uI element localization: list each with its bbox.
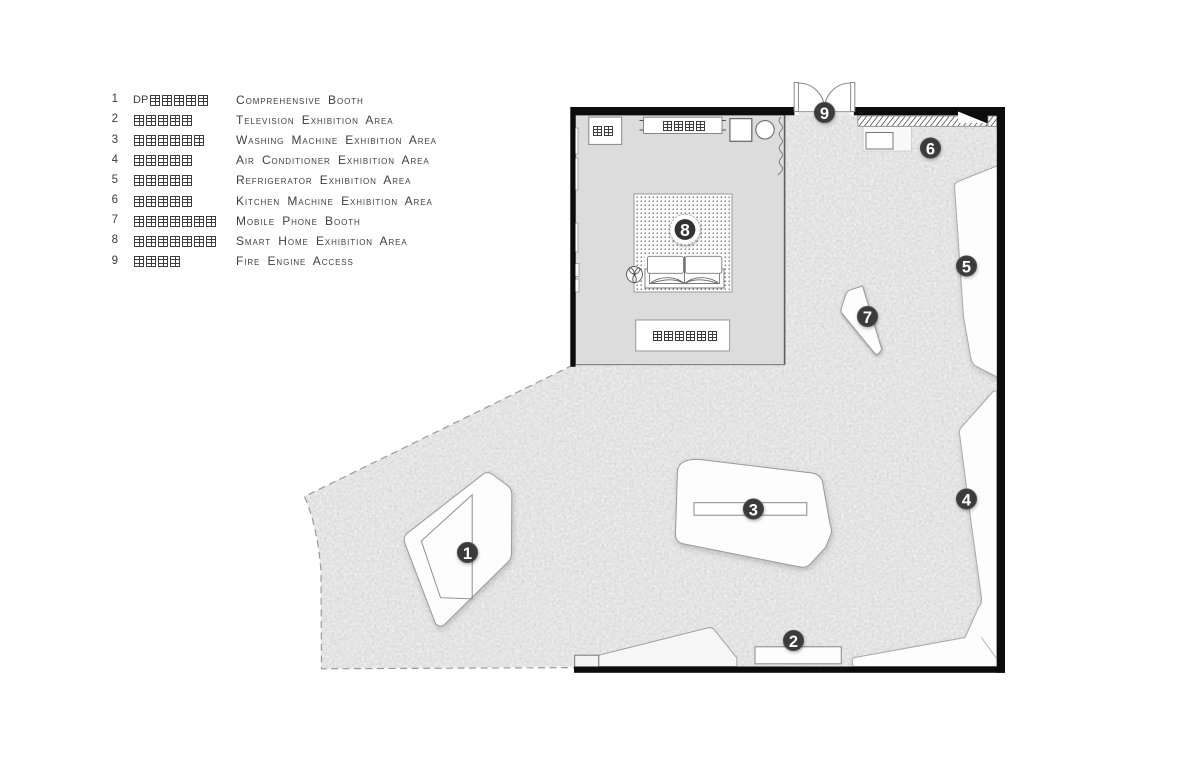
svg-text:2: 2 — [789, 633, 798, 651]
svg-text:5: 5 — [962, 258, 971, 276]
svg-text:8: 8 — [680, 220, 690, 240]
svg-text:9: 9 — [820, 105, 829, 123]
svg-text:6: 6 — [926, 140, 935, 158]
svg-text:3: 3 — [749, 501, 758, 519]
svg-text:4: 4 — [962, 491, 972, 509]
svg-text:7: 7 — [863, 309, 872, 327]
svg-text:1: 1 — [463, 545, 472, 563]
